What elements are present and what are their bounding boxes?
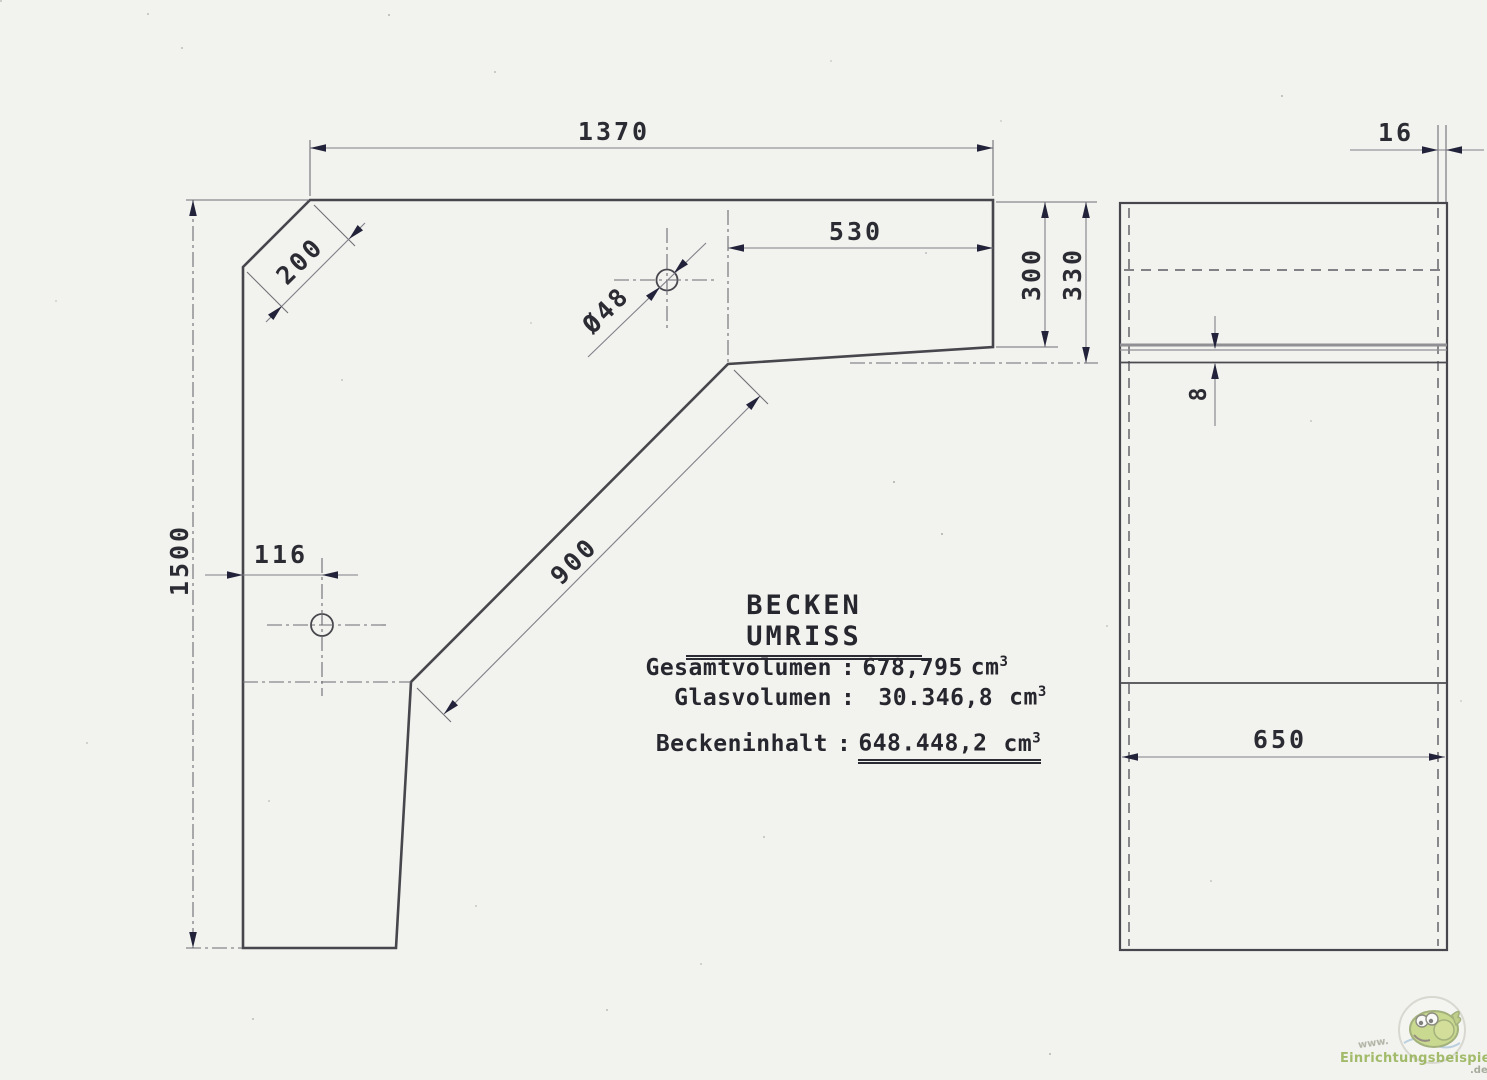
dim-chamfer: 200 (247, 205, 365, 322)
volume-glass-label: Glasvolumen (634, 685, 832, 711)
volume-content-underlined: 648.448,2cm3 (858, 730, 1041, 764)
hole-top: Ø48 (576, 228, 716, 357)
hole-left (267, 558, 386, 696)
dim-top-right-width-label: 530 (829, 217, 883, 246)
dim-bottom-glass: 8 (1186, 316, 1219, 426)
volume-row-total: Gesamtvolumen:678,795cm3 (634, 654, 1008, 681)
watermark: www. Einrichtungsbeispiele .de (1352, 985, 1487, 1080)
side-view (1120, 203, 1447, 950)
dim-hole-offset-label: 116 (254, 540, 308, 569)
colon: : (841, 685, 855, 711)
dim-side-width-label: 650 (1253, 725, 1307, 754)
volume-total-unit: cm3 (971, 654, 1009, 681)
dim-hole-diameter-label: Ø48 (576, 281, 636, 341)
dim-depth-outer: 330 (1058, 202, 1090, 363)
dim-left-height-label: 1500 (165, 524, 194, 596)
drawing-canvas: Ø48 116 1370 (0, 0, 1487, 1080)
dim-side-width: 650 (1122, 725, 1445, 761)
dim-chamfer-label: 200 (271, 232, 330, 291)
colon: : (837, 731, 851, 757)
dim-front-glass-label: 16 (1378, 118, 1414, 147)
watermark-name: Einrichtungsbeispiele (1340, 1051, 1487, 1066)
dim-depth-outer-label: 330 (1058, 247, 1087, 301)
dim-front-glass: 16 (1350, 118, 1484, 202)
volume-row-glass: Glasvolumen:30.346,8cm3 (634, 684, 1047, 711)
volume-content-label: Beckeninhalt (630, 731, 828, 757)
dim-top-right-width: 530 (728, 217, 993, 252)
volume-glass-value: 30.346,8 (878, 685, 993, 711)
volume-row-content: Beckeninhalt:648.448,2cm3 (630, 730, 1041, 764)
volume-glass-unit: cm3 (1009, 684, 1047, 711)
dim-top-width: 1370 (310, 117, 993, 196)
volume-content-value: 648.448,2 (858, 731, 987, 757)
volume-total-value: 678,795 (862, 655, 962, 681)
volume-total-label: Gesamtvolumen (634, 655, 832, 681)
dim-top-width-label: 1370 (578, 117, 650, 146)
volume-content-unit: cm3 (1003, 731, 1041, 757)
plan-centerlines (186, 210, 1098, 948)
technical-drawing-page: Ø48 116 1370 (0, 0, 1487, 1080)
drawing-title: BECKEN UMRISS (686, 590, 922, 660)
dim-depth-inner-label: 300 (1017, 247, 1046, 301)
dim-bottom-glass-label: 8 (1186, 385, 1212, 402)
colon: : (841, 655, 855, 681)
watermark-tld: .de (1470, 1065, 1487, 1076)
dim-hole-offset: 116 (205, 540, 358, 579)
